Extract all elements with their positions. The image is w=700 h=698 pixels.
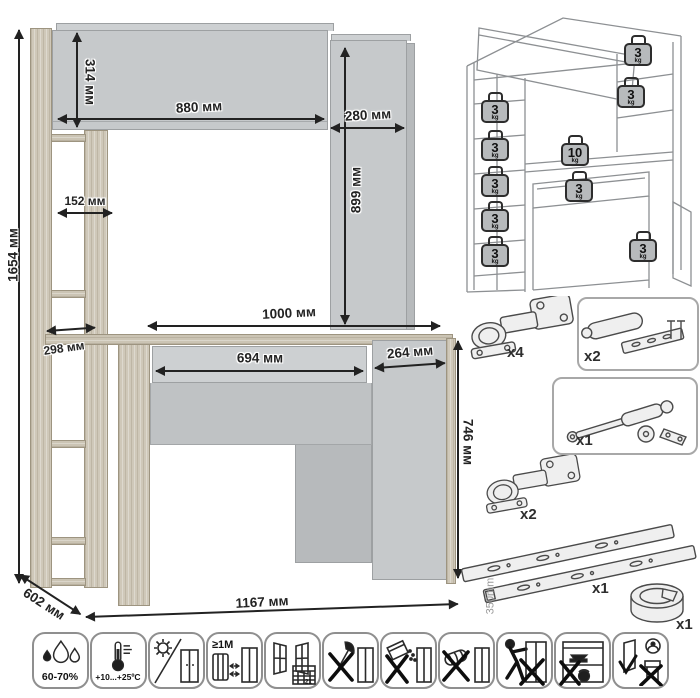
cabinet-door	[372, 340, 447, 580]
damper-qty: x2	[584, 348, 601, 365]
slides-length-label: 350mm	[484, 578, 496, 615]
humidity-range-label: 60-70%	[42, 672, 78, 683]
gas-strut-illustration	[554, 379, 692, 449]
strut-qty: x1	[576, 432, 593, 449]
shelf	[51, 440, 86, 448]
hutch-bottom-rail-line	[53, 121, 327, 122]
crossed-axe-cabinet-icon	[325, 636, 375, 686]
icon-no-abrasive-cleaners	[380, 632, 437, 689]
calendar-day-label: 21	[305, 679, 312, 685]
icon-no-direct-sunlight	[148, 632, 205, 689]
icon-no-solvents	[438, 632, 495, 689]
thermometer-icon	[95, 640, 141, 672]
dim-side-column-width: 280 мм	[345, 106, 392, 123]
cabinet-side	[295, 445, 372, 563]
dim-arrow-top-cabinet-height	[76, 33, 78, 127]
hinge-qty: x4	[507, 344, 524, 361]
icon-no-heavy-load-inside	[554, 632, 611, 689]
load-badge: 3kg	[629, 231, 657, 262]
side-column-side	[406, 43, 415, 330]
left-side-panel	[30, 28, 52, 588]
dim-arrow-side-column-height	[344, 48, 346, 324]
dim-desk-height: 746 мм	[461, 419, 476, 465]
open-window-calendar-icon: 21	[267, 636, 317, 686]
load-badge: 3kg	[624, 35, 652, 66]
grommet-qty: x1	[676, 616, 693, 633]
slides-qty: x1	[592, 580, 609, 597]
water-droplets-icon	[37, 639, 83, 671]
icon-humidity: 60-70%	[32, 632, 89, 689]
dim-arrow-total-height	[18, 30, 20, 583]
shelf	[51, 578, 86, 586]
distance-label: ≥1М	[212, 639, 233, 651]
door-check-crossed-stool-icon	[615, 636, 665, 686]
load-badge: 10kg	[561, 135, 589, 166]
shelf	[51, 537, 86, 545]
crossed-anvil-cabinet-icon	[557, 636, 607, 686]
icon-temperature: +10...+25ºC	[90, 632, 147, 689]
icon-no-sharp-tools	[322, 632, 379, 689]
icon-heat-source-distance: ≥1М	[206, 632, 263, 689]
load-badge: 3kg	[481, 236, 509, 267]
dim-arrow-top-cabinet-width	[58, 118, 324, 120]
load-badge: 3kg	[481, 201, 509, 232]
dim-arrow-lower-shelf-depth	[47, 327, 95, 332]
dim-total-height: 1654 мм	[6, 228, 21, 282]
icon-no-dragging	[496, 632, 553, 689]
load-badge: 3kg	[481, 130, 509, 161]
dim-upper-shelf-width: 152 мм	[64, 194, 105, 208]
shelf	[51, 290, 86, 298]
side-column-front	[330, 40, 407, 330]
load-badge: 3kg	[565, 171, 593, 202]
load-badge: 3kg	[481, 92, 509, 123]
icon-check-doors-anti-tip	[612, 632, 669, 689]
crossed-powder-box-cabinet-icon	[383, 636, 433, 686]
desk-back-panel	[150, 383, 372, 445]
load-badge: 3kg	[481, 166, 509, 197]
icon-ventilation-calendar: 21	[264, 632, 321, 689]
dim-arrow-upper-shelf-width	[58, 212, 112, 214]
dim-arrow-desktop-width	[148, 325, 440, 327]
temperature-range-label: +10...+25ºC	[95, 673, 140, 682]
crossed-sponge-cabinet-icon	[441, 636, 491, 686]
dim-desktop-width: 1000 мм	[262, 304, 316, 322]
hinge2-qty: x2	[520, 506, 537, 523]
care-icon-row: 60-70% +10...+25ºC ≥1М	[0, 632, 700, 689]
desk-left-leg	[118, 344, 150, 606]
dim-total-width: 1167 мм	[235, 593, 289, 611]
furniture-dimension-diagram: 1654 мм 314 мм 880 мм 280 мм 899 мм 152 …	[0, 0, 700, 698]
sun-slash-cabinet-icon	[151, 636, 201, 686]
person-pushing-cabinet-icon	[499, 636, 549, 686]
dim-arrow-drawer-width	[156, 370, 363, 372]
dim-side-column-height: 899 мм	[349, 167, 364, 213]
dim-top-cabinet-height: 314 мм	[83, 59, 98, 105]
dim-drawer-width: 694 мм	[237, 351, 283, 366]
dim-top-cabinet-width: 880 мм	[176, 98, 223, 115]
shelf	[51, 134, 86, 142]
load-badge: 3kg	[617, 77, 645, 108]
dim-arrow-side-column-width	[331, 127, 404, 129]
radiator-distance-cabinet-icon: ≥1М	[209, 636, 259, 686]
